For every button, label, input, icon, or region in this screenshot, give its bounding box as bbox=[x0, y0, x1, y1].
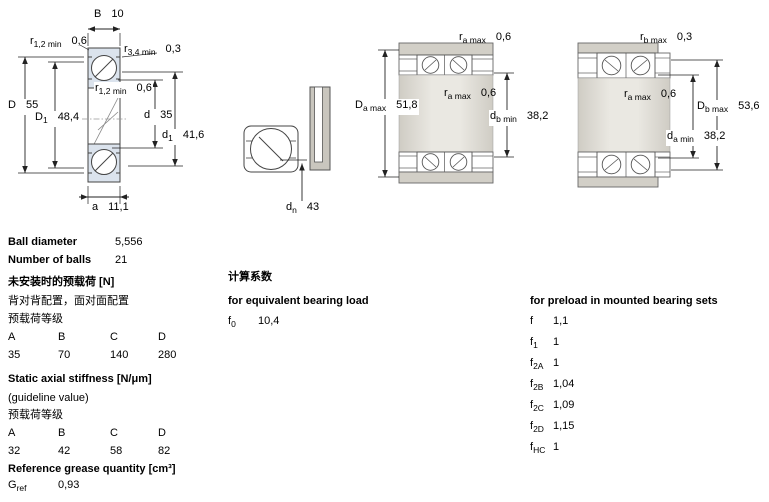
dim-da: da min38,2 bbox=[666, 130, 726, 146]
preload-header-b: B bbox=[58, 331, 65, 344]
preload-value-c: 140 bbox=[110, 349, 128, 362]
preload-header-d: D bbox=[158, 331, 166, 344]
factor-row-f2d: f2D 1,15 bbox=[530, 420, 544, 436]
factor-row-f2a: f2A 1 bbox=[530, 357, 543, 373]
dim-d1: d141,6 bbox=[161, 129, 205, 145]
factor-row-f1: f1 1 bbox=[530, 336, 538, 352]
dim-ra-top-shaft: ra max0,6 bbox=[459, 31, 511, 47]
bearing-datasheet-page: B10 r1,2 min0,6 r3,4 min0,3 D55 D148,4 r… bbox=[0, 0, 769, 502]
factor-row-f2c: f2C 1,09 bbox=[530, 399, 544, 415]
grease-row: Gref 0,93 bbox=[8, 479, 26, 495]
preload-header-c: C bbox=[110, 331, 118, 344]
preload-title: 未安装时的预载荷 [N] bbox=[8, 276, 114, 289]
stiffness-header-a: A bbox=[8, 427, 15, 440]
dim-db: db min38,2 bbox=[489, 110, 549, 126]
stiffness-header-c: C bbox=[110, 427, 118, 440]
preload-value-a: 35 bbox=[8, 349, 20, 362]
dim-d: d35 bbox=[143, 109, 173, 125]
preload-header-a: A bbox=[8, 331, 15, 344]
drawing-front-view bbox=[244, 87, 330, 172]
dim-dn: dn43 bbox=[286, 201, 319, 217]
preload-factors-title: for preload in mounted bearing sets bbox=[530, 295, 718, 308]
stiffness-value-b: 42 bbox=[58, 445, 70, 458]
equiv-load-title: for equivalent bearing load bbox=[228, 295, 369, 308]
dim-Db: Db max53,6 bbox=[696, 100, 761, 116]
drawing-mounted-housing bbox=[578, 43, 670, 187]
dim-Da: Da max51,8 bbox=[354, 99, 419, 115]
stiffness-value-d: 82 bbox=[158, 445, 170, 458]
dim-D1: D148,4 bbox=[34, 111, 80, 127]
dim-a: a11,1 bbox=[92, 201, 129, 217]
preload-value-d: 280 bbox=[158, 349, 176, 362]
stiffness-guideline: (guideline value) bbox=[8, 392, 89, 405]
dim-r12-top: r1,2 min0,6 bbox=[30, 35, 87, 51]
factor-row-f: f 1,1 bbox=[530, 315, 533, 331]
dim-r34-top: r3,4 min0,3 bbox=[124, 43, 181, 59]
stiffness-title: Static axial stiffness [N/μm] bbox=[8, 373, 152, 386]
preload-class-label: 预载荷等级 bbox=[8, 313, 63, 326]
calc-title-cn: 计算系数 bbox=[228, 271, 272, 284]
number-of-balls-label: Number of balls bbox=[8, 254, 91, 267]
drawing-cross-section bbox=[82, 48, 126, 182]
dim-ra-mid-shaft: ra max0,6 bbox=[444, 87, 496, 103]
number-of-balls-value: 21 bbox=[115, 254, 127, 267]
preload-arrangement: 背对背配置，面对面配置 bbox=[8, 295, 129, 308]
factor-row-fhc: fHC 1 bbox=[530, 441, 545, 457]
stiffness-value-c: 58 bbox=[110, 445, 122, 458]
stiffness-value-a: 32 bbox=[8, 445, 20, 458]
factor-row-f2b: f2B 1,04 bbox=[530, 378, 543, 394]
dim-rb-top: rb max0,3 bbox=[640, 31, 692, 47]
preload-value-b: 70 bbox=[58, 349, 70, 362]
ball-diameter-value: 5,556 bbox=[115, 236, 143, 249]
dim-r12-mid: r1,2 min0,6 bbox=[94, 82, 153, 98]
stiffness-header-d: D bbox=[158, 427, 166, 440]
grease-title: Reference grease quantity [cm³] bbox=[8, 463, 176, 476]
f0-row: f0 10,4 bbox=[228, 315, 236, 331]
stiffness-header-b: B bbox=[58, 427, 65, 440]
stiffness-class-label: 预载荷等级 bbox=[8, 409, 63, 422]
dim-ra-mid-housing: ra max0,6 bbox=[624, 88, 676, 104]
ball-diameter-label: Ball diameter bbox=[8, 236, 77, 249]
dim-B: B10 bbox=[94, 8, 124, 24]
